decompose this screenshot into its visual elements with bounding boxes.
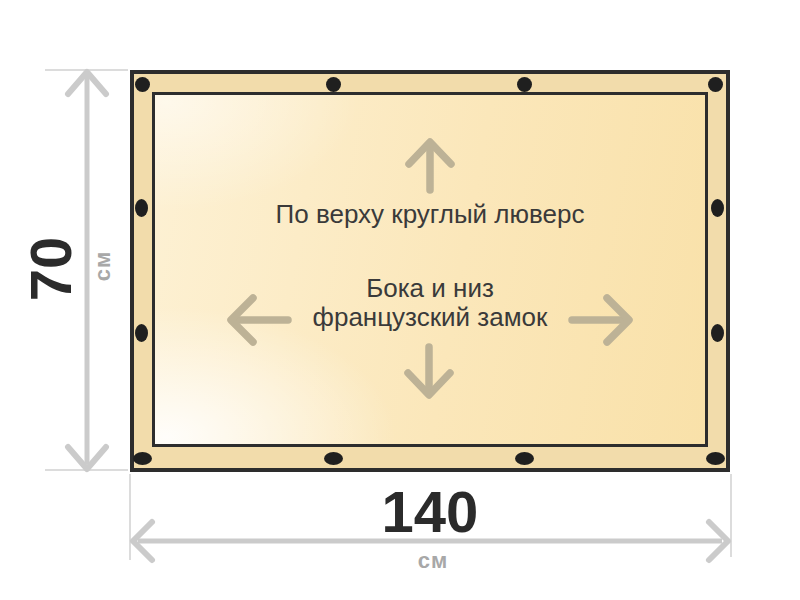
panel-inner-field [152,92,708,447]
sides-bottom-note-line1: Бока и низ [313,274,548,303]
sides-bottom-note-line2: французский замок [313,303,548,332]
grommet-oval-icon [515,452,534,465]
grommet-oval-icon [706,452,725,465]
width-unit: см [418,548,449,574]
height-value: 70 [17,237,84,302]
grommet-oval-icon [711,324,724,342]
grommet-round-icon [326,77,341,92]
grommet-round-icon [517,77,532,92]
grommet-oval-icon [135,324,148,342]
top-edge-note: По верху круглый люверс [276,200,585,229]
grommet-oval-icon [711,199,724,217]
grommet-oval-icon [324,452,343,465]
curtain-dimension-diagram: По верху круглый люверс Бока и низ франц… [0,0,800,600]
sides-bottom-note: Бока и низ французский замок [313,274,548,332]
grommet-round-icon [135,77,150,92]
grommet-oval-icon [135,199,148,217]
grommet-round-icon [708,77,723,92]
grommet-oval-icon [133,452,152,465]
width-value: 140 [382,478,479,545]
height-unit: см [90,251,116,282]
